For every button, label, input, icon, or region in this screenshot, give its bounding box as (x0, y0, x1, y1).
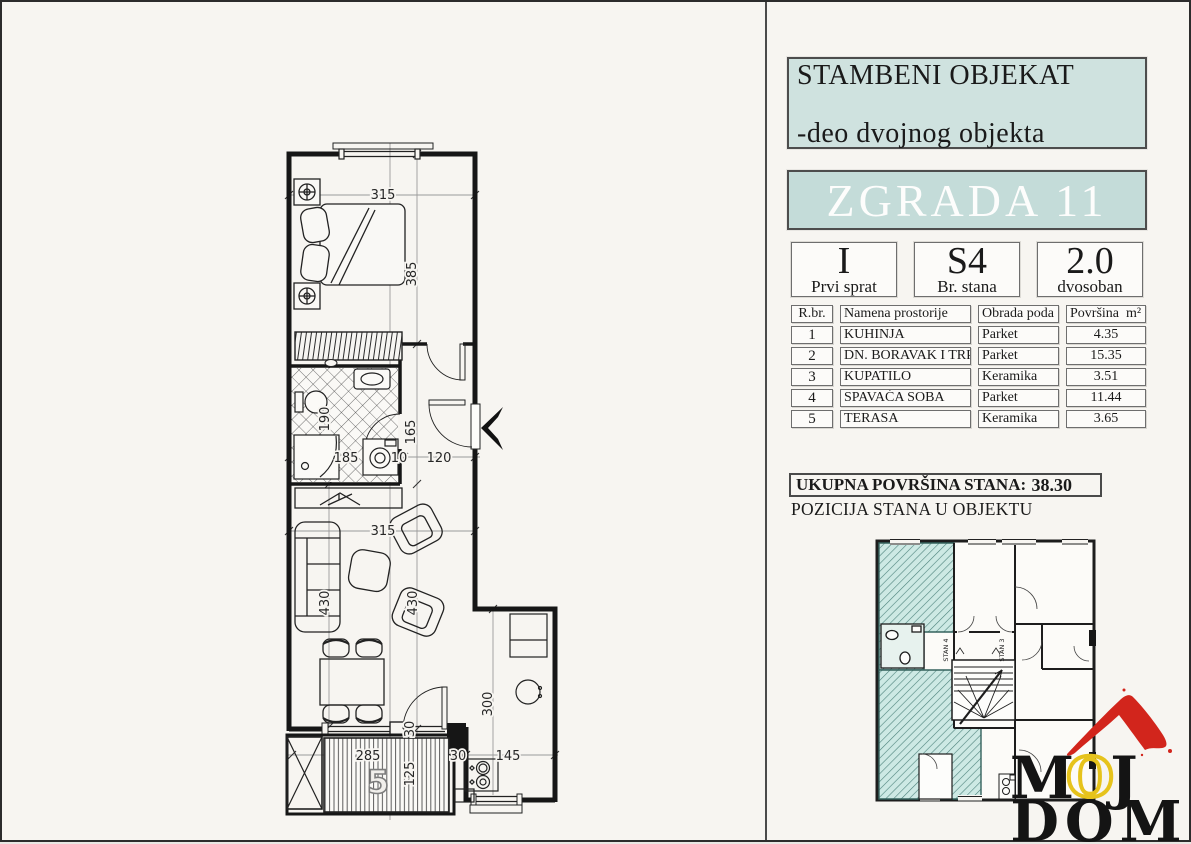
wardrobe (295, 332, 402, 367)
dim-bathroom-width: 185 (334, 451, 359, 466)
dim-bathroom-depth: 190 (318, 407, 333, 432)
bedroom-door (427, 344, 465, 380)
mini-bathroom (881, 624, 924, 668)
sink (354, 369, 390, 389)
dim-hallway-depth: 165 (404, 420, 419, 445)
dim-bedroom-width: 315 (371, 188, 396, 203)
dim-terrace-depth: 125 (403, 762, 418, 787)
kitchen-window (470, 794, 522, 813)
entrance-arrow-icon (481, 407, 503, 450)
floor-plan-sheet: 315 385 190 185 10 120 165 315 430 430 3… (0, 0, 1191, 842)
chair (356, 639, 382, 657)
dim-living-width: 315 (371, 524, 396, 539)
chair (356, 705, 382, 723)
shower (294, 435, 339, 479)
chair (323, 705, 349, 723)
kitchen-counter (510, 614, 547, 657)
main-floor-plan: 315 385 190 185 10 120 165 315 430 430 3… (2, 2, 767, 844)
mini-stairs (952, 660, 1015, 724)
dim-living-depth-right: 430 (406, 591, 421, 616)
mini-stan3-label: STAN 3 (998, 638, 1006, 661)
bedroom-window (333, 143, 433, 159)
entrance-door (429, 400, 480, 449)
dim-hallway-width: 120 (427, 451, 452, 466)
dim-wall: 10 (391, 451, 408, 466)
dim-balcony-door: 30 (403, 721, 418, 738)
position-mini-plan: STAN 4 STAN 3 M O J DOM (767, 2, 1191, 844)
terrace-room-number: 5 (367, 763, 389, 801)
coffee-table (347, 548, 392, 593)
dim-kitchen-depth: 300 (481, 692, 496, 717)
mini-room (919, 754, 952, 799)
dim-living-depth-left: 430 (318, 591, 333, 616)
dim-terrace-edge: 30 (450, 749, 467, 764)
kitchen-fixtures (465, 614, 547, 791)
kitchen-sink (516, 680, 540, 704)
logo-word-dom: DOM (1010, 789, 1187, 844)
dim-bedroom-depth: 385 (405, 262, 420, 287)
tv-cabinet (295, 488, 402, 508)
dim-terrace-width: 285 (356, 749, 381, 764)
dim-kitchen-width: 145 (496, 749, 521, 764)
mini-stan4-label: STAN 4 (942, 638, 950, 661)
dining-set (320, 639, 384, 723)
chair (323, 639, 349, 657)
